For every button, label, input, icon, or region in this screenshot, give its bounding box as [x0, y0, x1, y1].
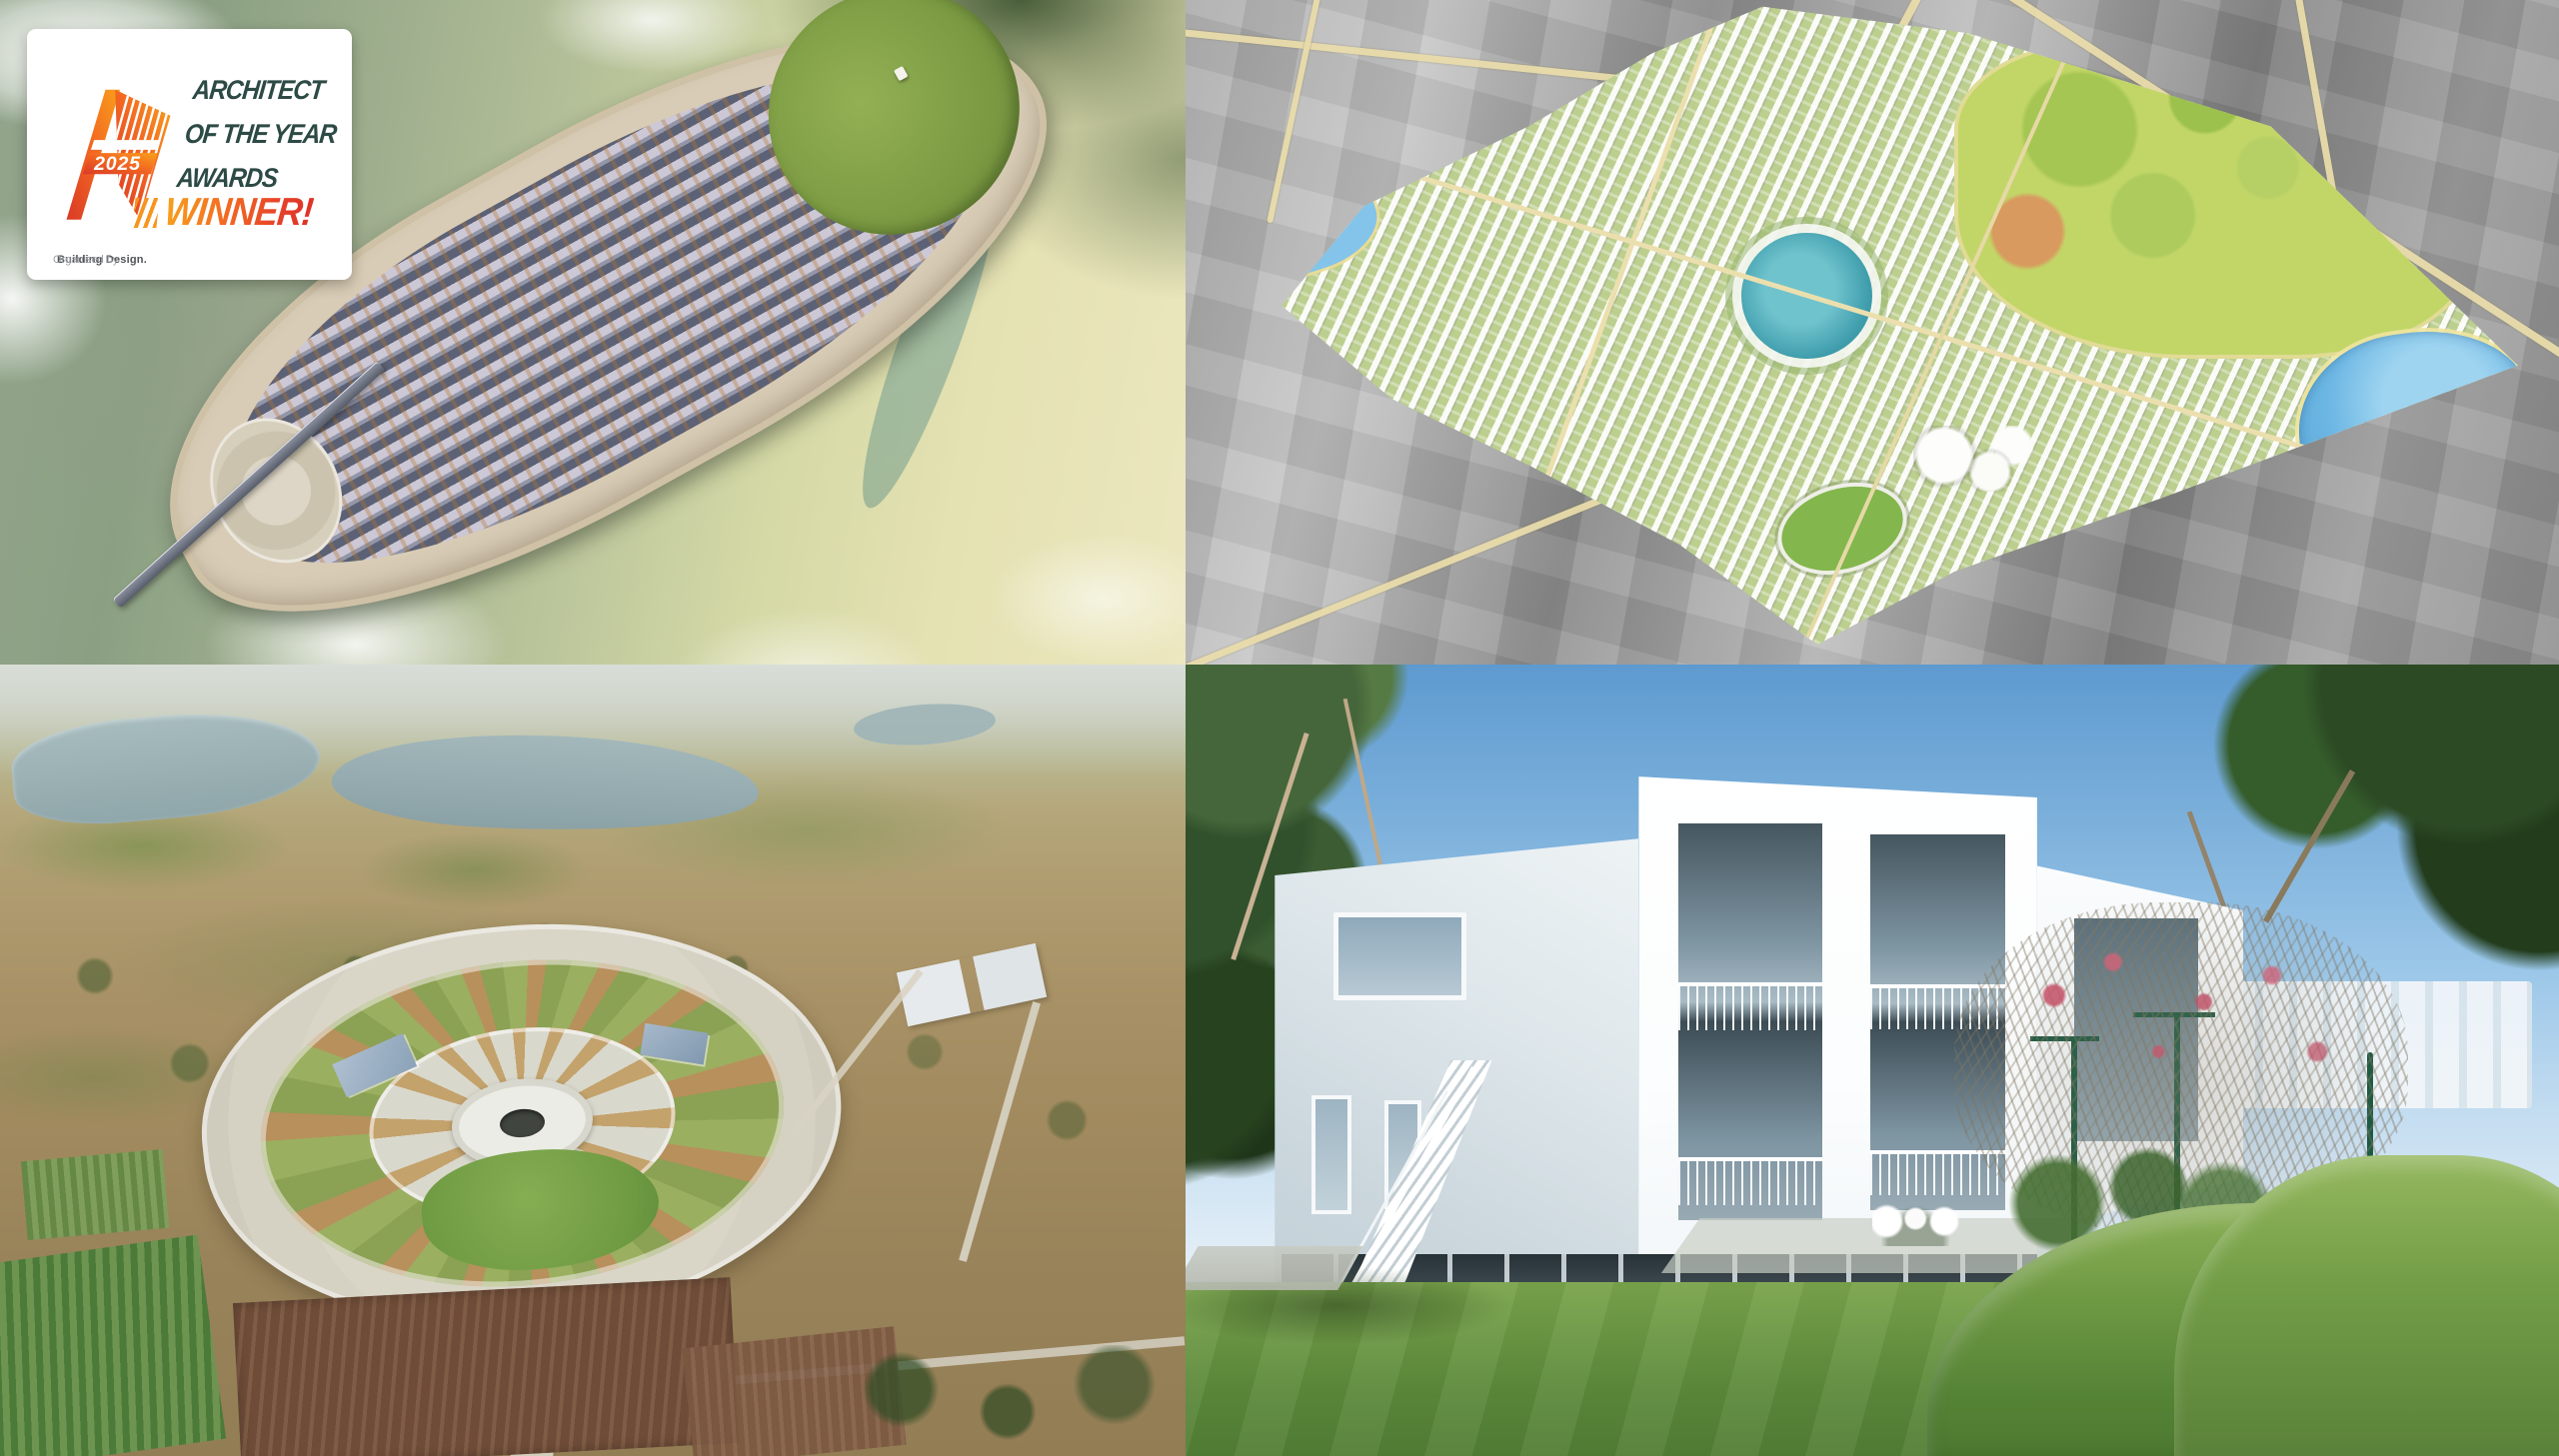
badge-title-line-1: ARCHITECT: [191, 77, 325, 104]
window: [1333, 912, 1467, 1000]
badge-winner-row: WINNER!: [132, 193, 331, 232]
ploughed-field: [233, 1277, 739, 1456]
panel-monastery-aerial-render: 2025 ARCHITECT OF THE YEAR AWARDS WINNER…: [0, 0, 1186, 665]
panel-circular-campus-aerial: [0, 665, 1186, 1456]
masterplan-stadium: [1766, 469, 1917, 590]
award-year: 2025: [93, 153, 141, 175]
award-badge: 2025 ARCHITECT OF THE YEAR AWARDS WINNER…: [27, 29, 352, 280]
stair-flight: [1343, 1060, 1528, 1298]
railing-balusters: [1678, 986, 1821, 1030]
badge-organiser-line: Organised byBuilding Design.: [53, 254, 147, 266]
double-height-veranda: [1678, 823, 1821, 1220]
organiser-prefix: Organised by: [53, 254, 118, 266]
badge-title-line-3: AWARDS: [175, 165, 278, 192]
badge-title-line-2: OF THE YEAR: [183, 121, 337, 148]
collage: 2025 ARCHITECT OF THE YEAR AWARDS WINNER…: [0, 0, 2559, 1456]
masterplan-dome-halls: [1913, 426, 2037, 493]
external-steel-stair: [1343, 1060, 1528, 1298]
crop-rows: [21, 1149, 170, 1240]
railing-balusters: [1678, 1161, 1821, 1205]
badge-winner-label: WINNER!: [163, 193, 315, 232]
crop-rows: [0, 1235, 227, 1456]
panel-white-villa-garden: [1186, 665, 2559, 1456]
white-garden-chairs: [1872, 1191, 1968, 1246]
foreground-trees: [830, 1345, 1186, 1456]
stepping-path: [1186, 1246, 1362, 1290]
hatch-stripes-icon: [133, 198, 160, 228]
panel-urban-masterplan-render: [1186, 0, 2559, 665]
